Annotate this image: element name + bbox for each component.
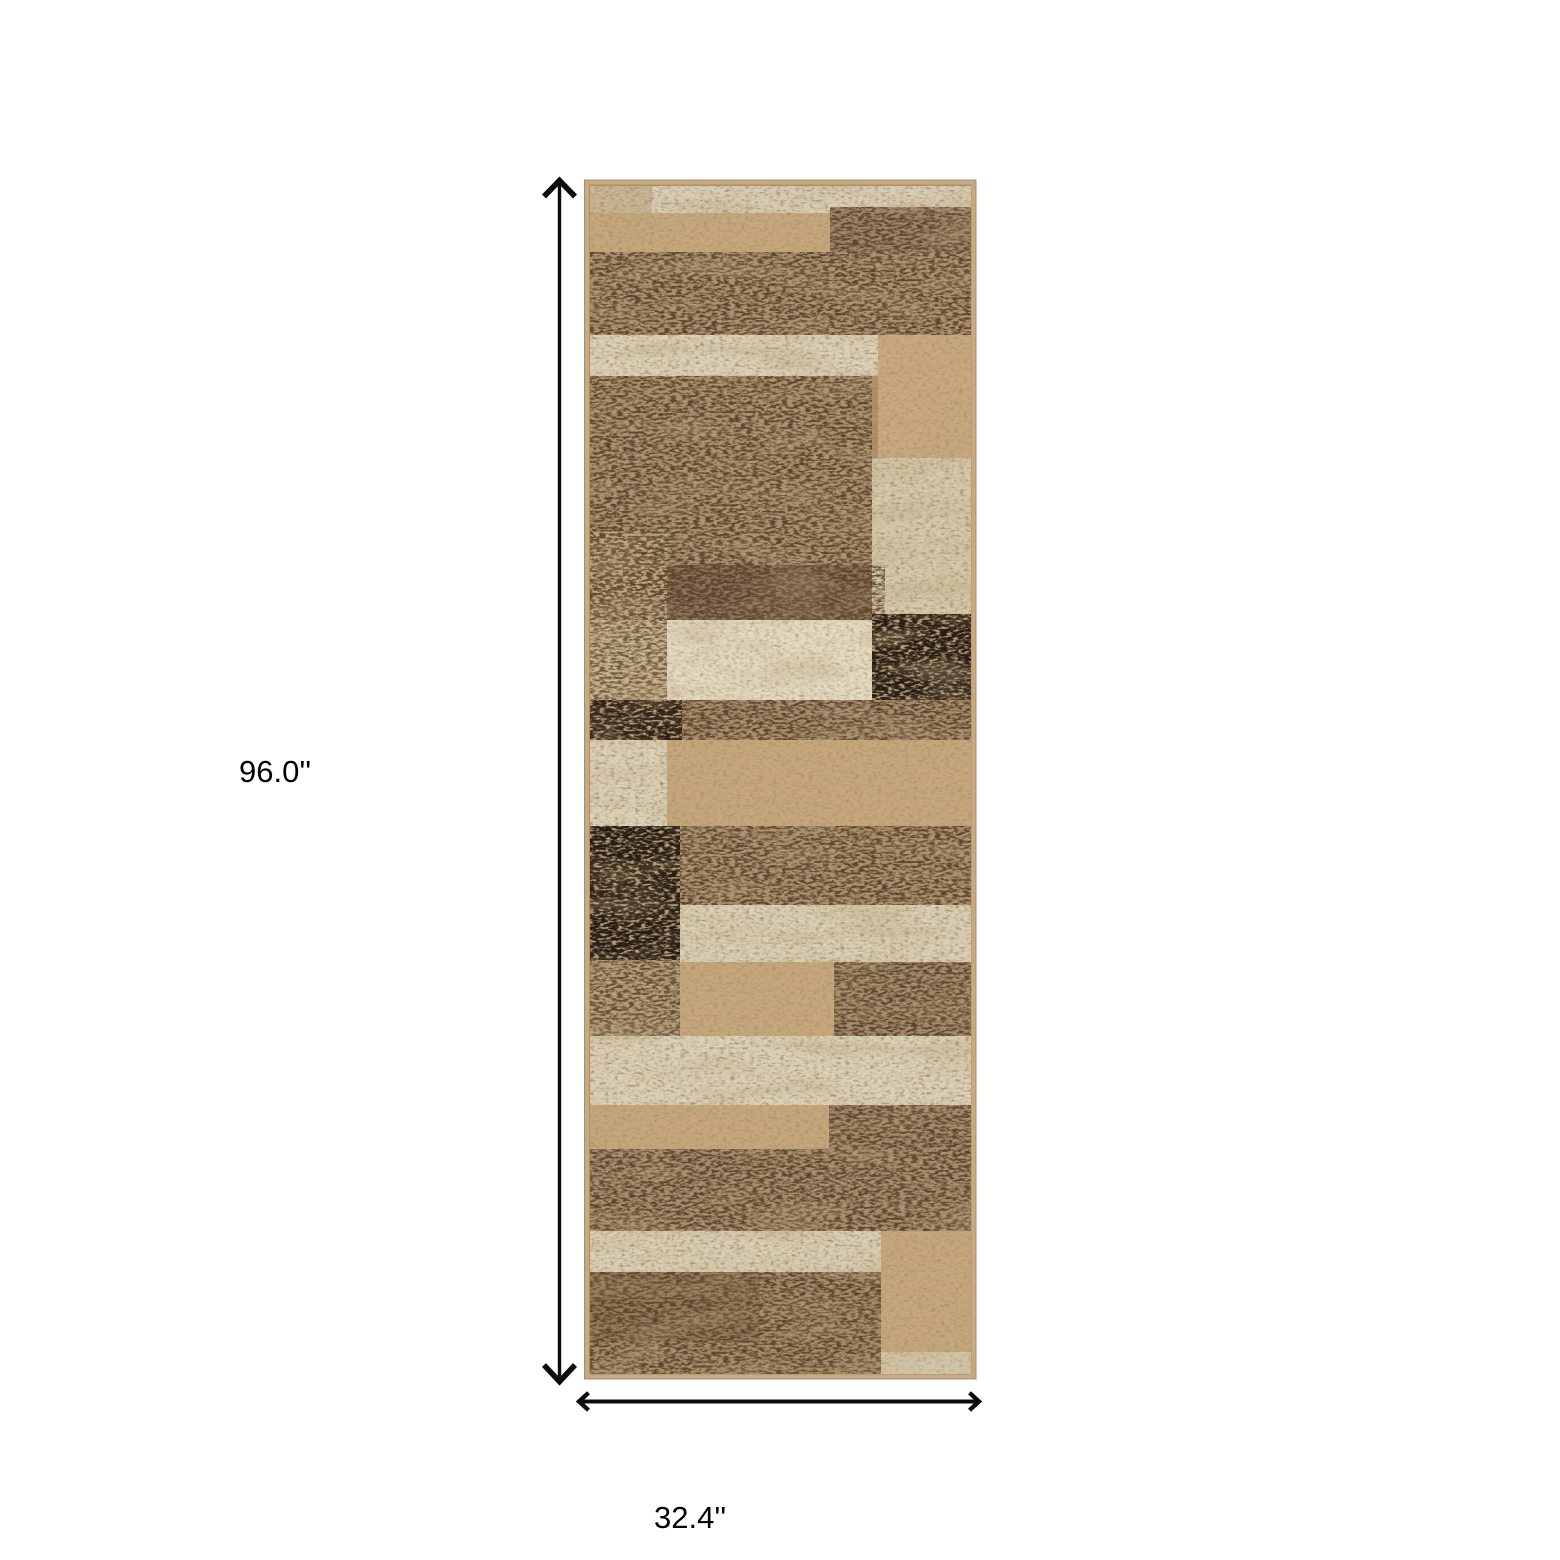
svg-text:32.4'': 32.4'' — [654, 1500, 726, 1535]
svg-text:96.0'': 96.0'' — [239, 754, 311, 789]
